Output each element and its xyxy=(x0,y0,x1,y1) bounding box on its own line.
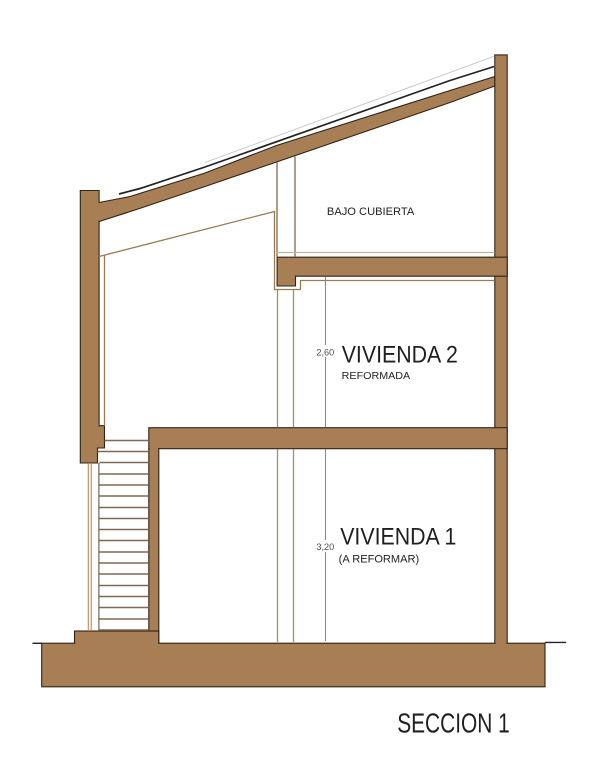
svg-text:VIVIENDA 2: VIVIENDA 2 xyxy=(342,342,458,369)
svg-text:2,60: 2,60 xyxy=(316,347,334,358)
svg-text:SECCION 1: SECCION 1 xyxy=(397,707,510,738)
svg-text:BAJO CUBIERTA: BAJO CUBIERTA xyxy=(327,206,415,218)
svg-text:(A REFORMAR): (A REFORMAR) xyxy=(339,554,420,566)
svg-text:3,20: 3,20 xyxy=(316,542,334,553)
svg-text:VIVIENDA 1: VIVIENDA 1 xyxy=(340,523,456,550)
svg-text:REFORMADA: REFORMADA xyxy=(342,371,411,382)
